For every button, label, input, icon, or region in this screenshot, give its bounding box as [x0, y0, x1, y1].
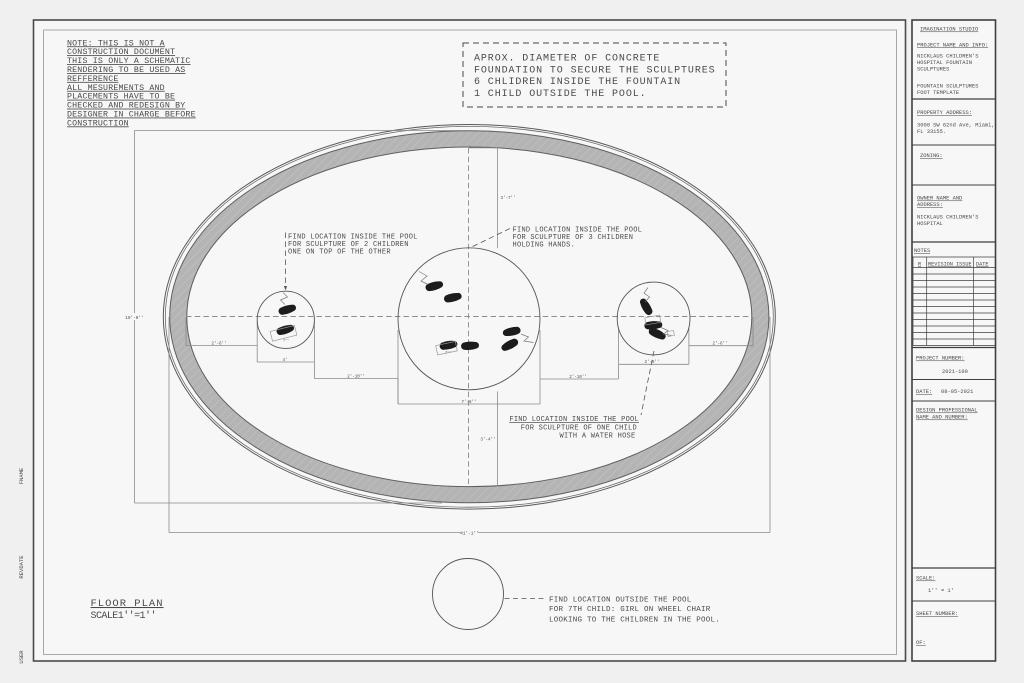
svg-text:DATE:: DATE:: [916, 389, 932, 395]
svg-text:HOSPITAL: HOSPITAL: [917, 221, 943, 227]
svg-text:1'' = 1': 1'' = 1': [928, 588, 954, 594]
svg-text:6 CHLIDREN INSIDE THE FOUNTAIN: 6 CHLIDREN INSIDE THE FOUNTAIN: [474, 77, 681, 88]
svg-text:IMAGINATION STUDIO: IMAGINATION STUDIO: [920, 27, 978, 33]
svg-text:NOTE: THIS IS NOT A: NOTE: THIS IS NOT A: [67, 39, 165, 48]
svg-text:CONSTRUCTION: CONSTRUCTION: [67, 119, 129, 128]
svg-text:FLOOR PLAN: FLOOR PLAN: [91, 598, 164, 610]
svg-text:FIND LOCATION OUTSIDE THE POOL: FIND LOCATION OUTSIDE THE POOL: [549, 596, 692, 604]
svg-text:DATE: DATE: [976, 262, 988, 268]
svg-text:WITH A WATER HOSE: WITH A WATER HOSE: [559, 433, 635, 441]
svg-text:1 CHILD OUTSIDE THE POOL.: 1 CHILD OUTSIDE THE POOL.: [474, 89, 647, 100]
svg-text:CHECKED AND REDESIGN BY: CHECKED AND REDESIGN BY: [67, 102, 185, 111]
svg-text:SHEET NUMBER:: SHEET NUMBER:: [916, 611, 958, 617]
svg-text:FOUNTAIN SCULPTURES: FOUNTAIN SCULPTURES: [917, 84, 978, 90]
svg-text:7'': 7'': [445, 351, 451, 356]
svg-text:RENDERING TO BE USED AS: RENDERING TO BE USED AS: [67, 66, 185, 75]
svg-text:OWNER NAME AND: OWNER NAME AND: [917, 196, 962, 202]
svg-text:APROX. DIAMETER OF CONCRETE: APROX. DIAMETER OF CONCRETE: [474, 54, 660, 65]
svg-text:2021-100: 2021-100: [942, 369, 968, 375]
svg-text:2'-6'': 2'-6'': [712, 342, 727, 347]
svg-text:ONE ON TOP OF THE OTHER: ONE ON TOP OF THE OTHER: [288, 249, 391, 257]
svg-text:7'': 7'': [283, 339, 289, 344]
svg-text:4': 4': [282, 358, 287, 363]
svg-text:CONSTRUCTION DOCUMENT: CONSTRUCTION DOCUMENT: [67, 48, 175, 57]
svg-text:3'-4'': 3'-4'': [480, 438, 495, 443]
svg-text:2'-10'': 2'-10'': [569, 375, 587, 380]
svg-text:THIS IS ONLY A SCHEMATIC: THIS IS ONLY A SCHEMATIC: [67, 57, 191, 66]
svg-text:DESIGN PROFESSIONAL: DESIGN PROFESSIONAL: [916, 408, 977, 414]
svg-text:3000 SW 62nd Ave, Miami,: 3000 SW 62nd Ave, Miami,: [917, 123, 995, 129]
svg-text:PROJECT NAME AND INFO:: PROJECT NAME AND INFO:: [917, 42, 988, 48]
svg-text:NOTES: NOTES: [914, 248, 930, 254]
svg-text:2'-6'': 2'-6'': [211, 341, 226, 346]
svg-text:41'-1'': 41'-1'': [460, 532, 478, 537]
svg-text:FOR SCULPTURE OF ONE CHILD: FOR SCULPTURE OF ONE CHILD: [521, 424, 637, 432]
svg-text:2'-10'': 2'-10'': [347, 374, 365, 379]
svg-text:USER: USER: [18, 650, 25, 664]
svg-text:ALL MESUREMENTS AND: ALL MESUREMENTS AND: [67, 84, 165, 93]
svg-text:3'-7'': 3'-7'': [501, 196, 516, 201]
svg-text:HOLDING HANDS.: HOLDING HANDS.: [513, 242, 576, 250]
svg-text:FL 33155.: FL 33155.: [917, 129, 946, 135]
svg-text:FOOT TEMPLATE: FOOT TEMPLATE: [917, 90, 959, 96]
svg-text:SCALE1''=1'': SCALE1''=1'': [91, 610, 156, 622]
svg-text:7'-8'': 7'-8'': [461, 400, 476, 405]
svg-text:LOOKING TO THE CHILDREN IN THE: LOOKING TO THE CHILDREN IN THE POOL.: [549, 616, 720, 624]
svg-text:R: R: [918, 262, 921, 268]
svg-text:REVISION ISSUE: REVISION ISSUE: [928, 262, 972, 268]
svg-text:REVDATE: REVDATE: [18, 555, 25, 579]
svg-text:HOSPITAL FOUNTAIN: HOSPITAL FOUNTAIN: [917, 60, 972, 66]
svg-text:OF:: OF:: [916, 640, 926, 646]
svg-text:NICKLAUS CHILDREN'S: NICKLAUS CHILDREN'S: [917, 54, 978, 60]
svg-text:FOR 7TH CHILD: GIRL ON WHEEL C: FOR 7TH CHILD: GIRL ON WHEEL CHAIR: [549, 606, 711, 614]
svg-text:NICKLAUS CHILDREN'S: NICKLAUS CHILDREN'S: [917, 215, 978, 221]
svg-text:ADDRESS:: ADDRESS:: [917, 202, 943, 208]
svg-text:PLACEMENTS HAVE TO BE: PLACEMENTS HAVE TO BE: [67, 93, 175, 102]
svg-text:FIND LOCATION INSIDE THE POOL: FIND LOCATION INSIDE THE POOL: [509, 416, 639, 424]
svg-text:PROJECT NUMBER:: PROJECT NUMBER:: [916, 356, 965, 362]
svg-text:DESIGNER IN CHARGE BEFORE: DESIGNER IN CHARGE BEFORE: [67, 111, 196, 120]
svg-text:PROPERTY ADDRESS:: PROPERTY ADDRESS:: [917, 110, 972, 116]
svg-text:FNAME: FNAME: [18, 467, 25, 484]
svg-text:SCALE:: SCALE:: [916, 576, 935, 582]
svg-text:ZONING:: ZONING:: [920, 153, 943, 159]
svg-text:19'-0'': 19'-0'': [125, 316, 143, 321]
svg-text:08-05-2021: 08-05-2021: [941, 389, 973, 395]
svg-text:FOUNDATION TO SECURE THE SCULP: FOUNDATION TO SECURE THE SCULPTURES: [474, 65, 716, 76]
svg-text:REFFERENCE: REFFERENCE: [67, 75, 119, 84]
svg-text:NAME AND NUMBER:: NAME AND NUMBER:: [916, 415, 968, 421]
svg-text:SCULPTURES: SCULPTURES: [917, 67, 949, 73]
